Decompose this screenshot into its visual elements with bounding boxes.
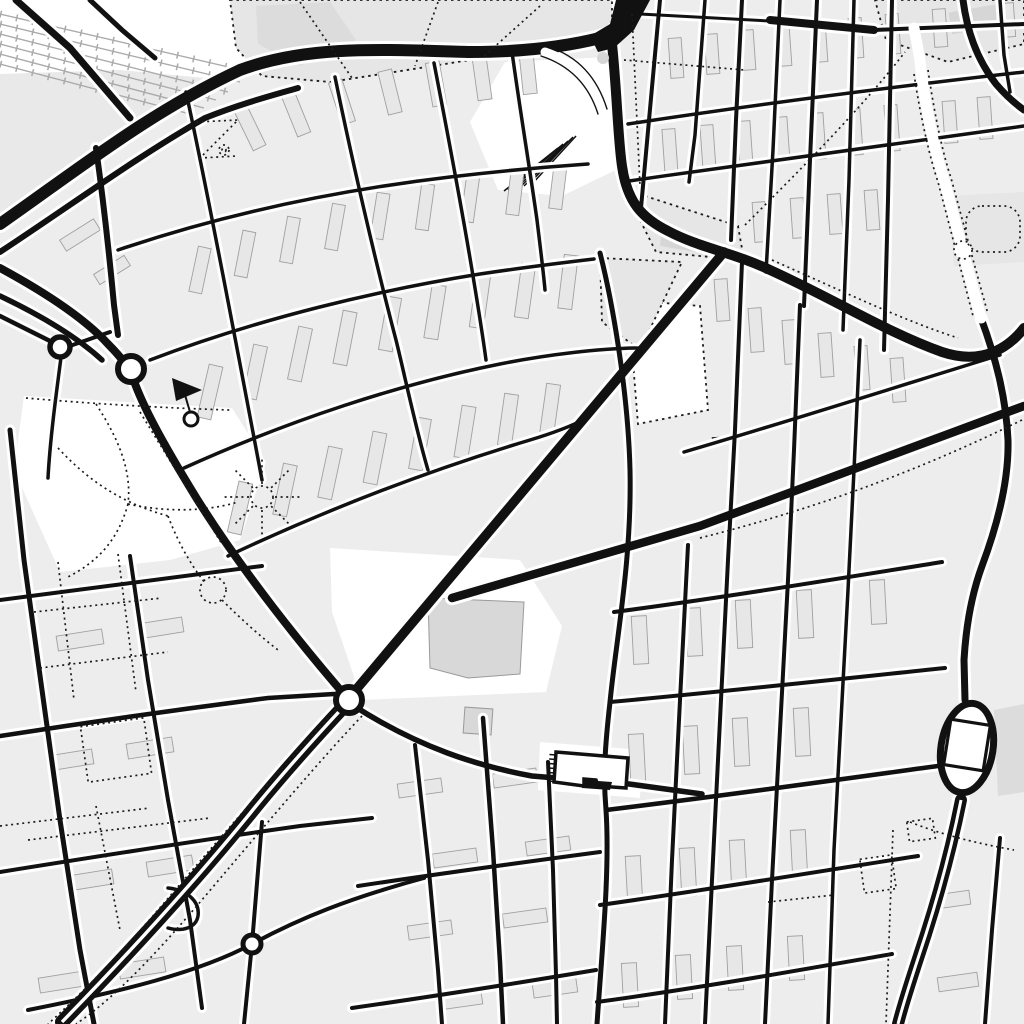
mall-bay — [954, 241, 972, 259]
building-row — [668, 38, 684, 79]
city-map-canvas[interactable] — [0, 0, 1024, 1024]
building-row — [748, 308, 764, 353]
map-viewport[interactable] — [0, 0, 1024, 1024]
building-row — [732, 718, 749, 767]
plaza-big-building — [428, 598, 524, 678]
roundabout-west-small — [50, 337, 70, 357]
building-row — [628, 734, 645, 783]
building-row — [714, 279, 730, 322]
building-row — [662, 129, 678, 176]
building-row — [682, 726, 699, 775]
building-row — [864, 190, 880, 231]
building-row — [869, 580, 886, 625]
fountain-circle — [184, 412, 198, 426]
roundabout-north — [118, 356, 144, 382]
east-of-oval-gray — [994, 704, 1024, 796]
building-row — [827, 194, 843, 235]
building-row — [793, 708, 810, 757]
stadium-inner-rect — [944, 719, 991, 771]
building-row — [818, 333, 834, 378]
mini-roundabout-south — [243, 935, 261, 953]
building-row — [631, 616, 648, 665]
junction-gray-dot — [597, 52, 609, 64]
building-row — [735, 600, 752, 649]
roundabout-central — [336, 687, 362, 713]
building-row — [796, 590, 813, 639]
